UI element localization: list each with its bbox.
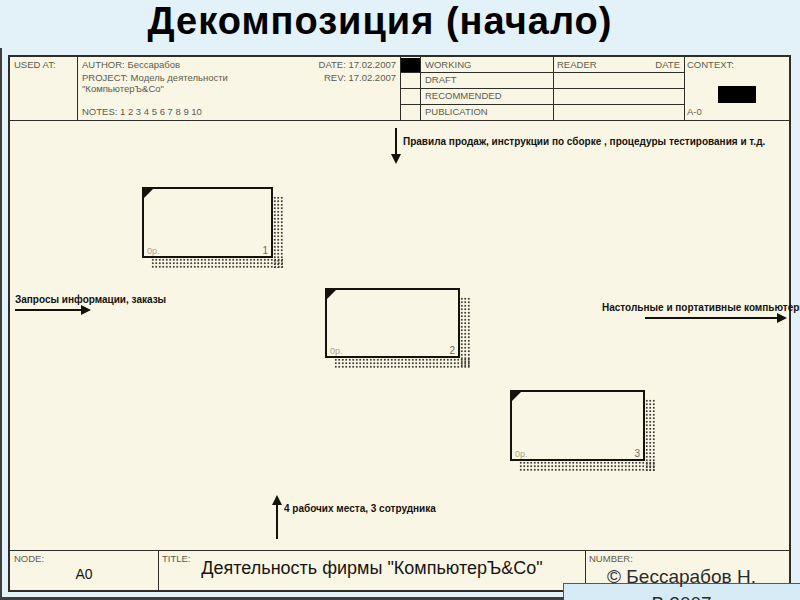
mechanism-arrow-line <box>276 504 278 539</box>
node-label: NODE: <box>14 553 44 564</box>
status-working: WORKING <box>425 59 471 70</box>
node-value: A0 <box>10 566 158 582</box>
project-value-line2: "КомпьютерЪ&Co" <box>82 83 164 94</box>
status-draft: DRAFT <box>425 74 457 85</box>
cell-divider <box>77 57 78 120</box>
box-number: 1 <box>262 245 268 256</box>
box-cost: 0р. <box>330 346 343 356</box>
copyright-line1: © Бессарабов Н. <box>563 566 800 588</box>
box-number: 2 <box>449 345 455 356</box>
date-row: DATE: 17.02.2007 <box>260 59 396 70</box>
project-label: PROJECT: <box>82 72 128 83</box>
idef0-form: USED AT: AUTHOR: Бессарабов PROJECT: Мод… <box>8 55 791 592</box>
context-label: CONTEXT: <box>687 59 734 70</box>
copyright-line2: В 2007 <box>563 593 800 600</box>
date-label: DATE: <box>319 59 346 70</box>
author-value: Бессарабов <box>127 59 180 70</box>
notes-value: 1 2 3 4 5 6 7 8 9 10 <box>120 106 202 117</box>
status-publication: PUBLICATION <box>425 106 488 117</box>
cell-divider <box>400 104 684 105</box>
notes-row: NOTES: 1 2 3 4 5 6 7 8 9 10 <box>82 106 202 117</box>
slide-edge-left <box>0 48 2 600</box>
box-shadow <box>334 358 470 368</box>
context-node: A-0 <box>687 106 702 117</box>
box-shadow <box>151 258 283 268</box>
cell-divider <box>400 72 684 73</box>
cell-divider <box>684 57 685 120</box>
used-at-label: USED AT: <box>14 59 56 70</box>
project-value: Модель деятельности <box>131 72 228 83</box>
box-corner-icon <box>143 188 154 199</box>
context-marker <box>718 86 756 103</box>
box-shadow <box>519 461 655 471</box>
rev-value: 17.02.2007 <box>348 72 396 83</box>
slide-title: Декомпозиция (начало) <box>0 0 760 43</box>
input-arrow-line <box>15 309 81 311</box>
mechanism-arrow-label: 4 рабочих места, 3 сотрудника <box>284 503 436 514</box>
reader-date-label: DATE <box>655 59 680 70</box>
diagram-title: Деятельность фирмы "КомпьютерЪ&Co" <box>159 558 585 579</box>
activity-box-1: 0р. 1 <box>142 187 273 258</box>
control-arrow-label: Правила продаж, инструкции по сборке , п… <box>403 136 765 147</box>
control-arrow-line <box>395 128 397 155</box>
status-recommended: RECOMMENDED <box>425 90 502 101</box>
rev-label: REV: <box>324 72 346 83</box>
box-corner-icon <box>326 289 337 300</box>
reader-label: READER <box>557 59 597 70</box>
box-corner-icon <box>511 391 522 402</box>
author-label: AUTHOR: <box>82 59 125 70</box>
output-arrow-label: Настольные и портативные компьютеры <box>602 302 800 313</box>
project-row: PROJECT: Модель деятельности <box>82 72 228 83</box>
cell-divider <box>400 88 684 89</box>
output-arrowhead-icon <box>777 313 787 323</box>
activity-box-2: 0р. 2 <box>325 288 460 358</box>
author-row: AUTHOR: Бессарабов <box>82 59 180 70</box>
box-cost: 0р. <box>147 246 160 256</box>
number-label: NUMBER: <box>589 553 633 564</box>
header-bottom-divider <box>10 120 789 121</box>
date-value: 17.02.2007 <box>348 59 396 70</box>
output-arrow-line <box>645 317 777 319</box>
activity-box-3: 0р. 3 <box>510 390 645 461</box>
input-arrow-label: Запросы информации, заказы <box>15 294 166 305</box>
box-cost: 0р. <box>515 449 528 459</box>
control-arrowhead-icon <box>391 154 401 164</box>
box-number: 3 <box>634 448 640 459</box>
working-checkbox-marker <box>401 58 420 72</box>
notes-label: NOTES: <box>82 106 117 117</box>
footer-top-divider <box>10 550 789 551</box>
reader-date-row: READER DATE <box>557 59 680 70</box>
rev-row: REV: 17.02.2007 <box>260 72 396 83</box>
input-arrowhead-icon <box>81 305 91 315</box>
